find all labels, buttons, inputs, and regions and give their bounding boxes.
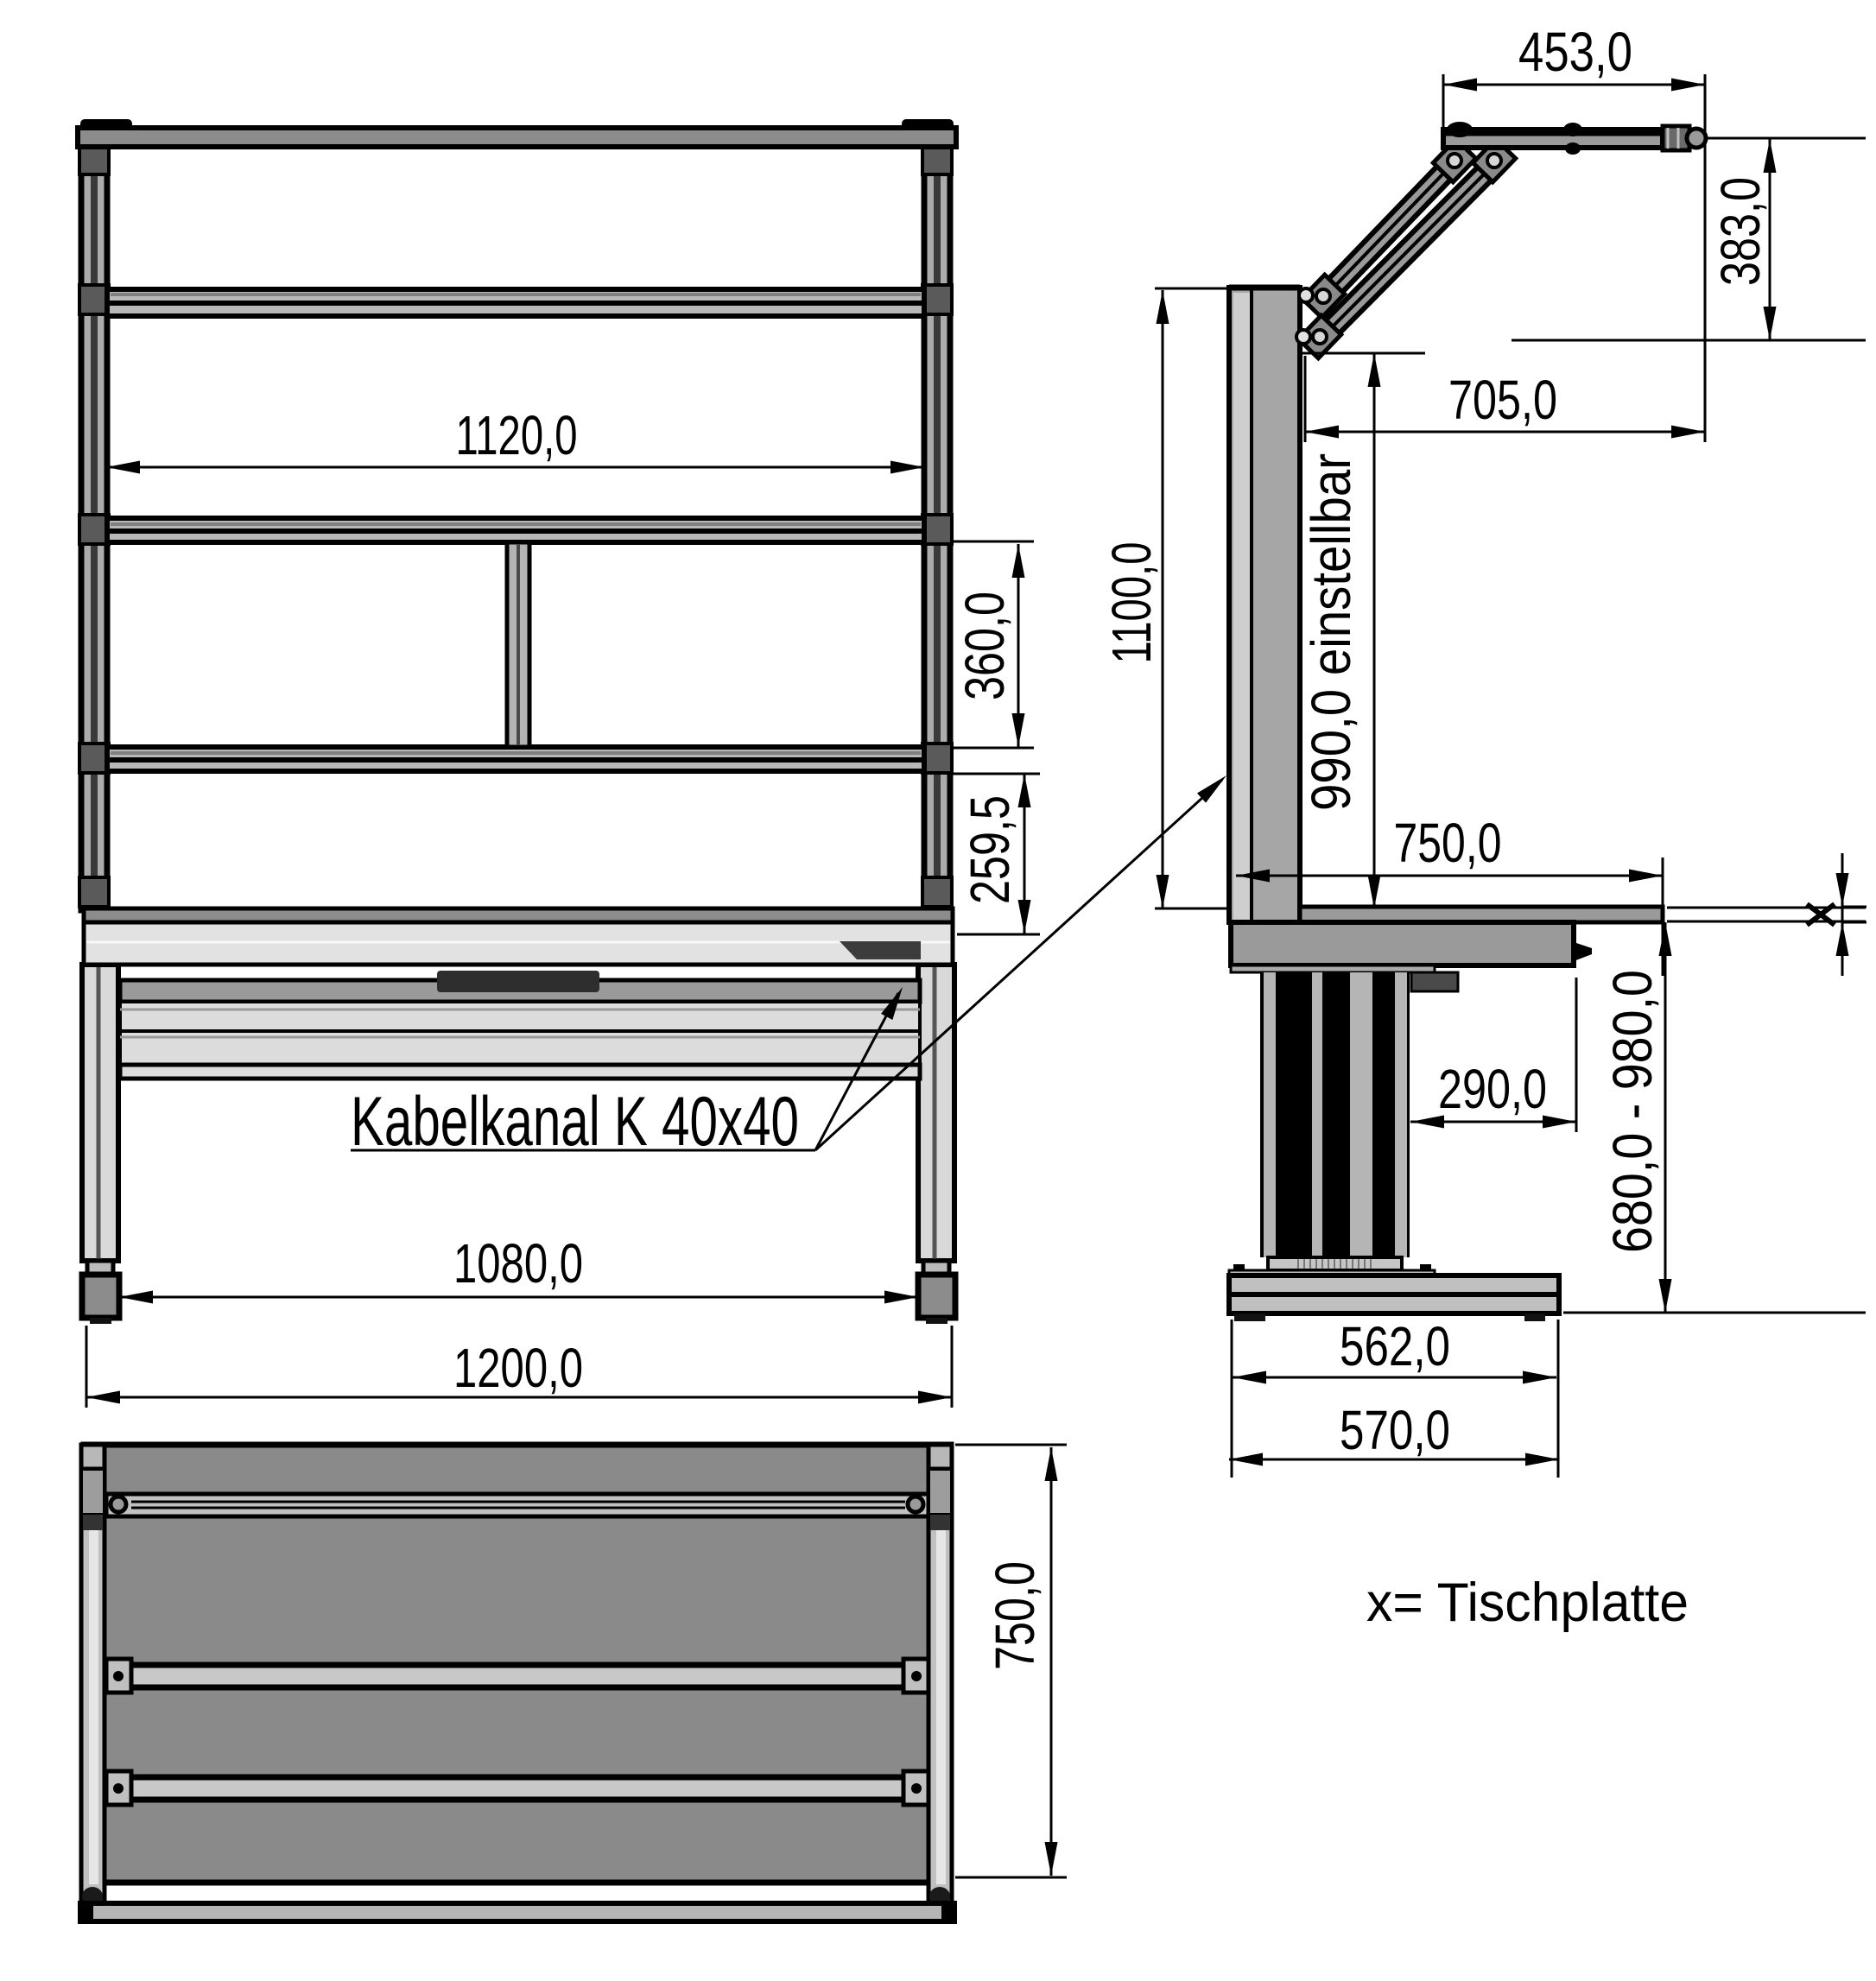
svg-text:990,0 einstellbar: 990,0 einstellbar: [1300, 453, 1362, 811]
svg-text:259,5: 259,5: [959, 795, 1021, 904]
svg-text:290,0: 290,0: [1438, 1058, 1547, 1120]
svg-text:453,0: 453,0: [1518, 21, 1632, 83]
svg-text:562,0: 562,0: [1340, 1315, 1450, 1377]
svg-text:1100,0: 1100,0: [1100, 542, 1163, 664]
svg-text:x= Tischplatte: x= Tischplatte: [1366, 1573, 1689, 1633]
svg-text:570,0: 570,0: [1340, 1399, 1450, 1461]
svg-text:1120,0: 1120,0: [456, 404, 578, 466]
svg-text:750,0: 750,0: [984, 1561, 1046, 1670]
svg-text:383,0: 383,0: [1709, 177, 1771, 286]
svg-text:1200,0: 1200,0: [453, 1337, 583, 1399]
svg-text:360,0: 360,0: [954, 592, 1016, 700]
svg-text:750,0: 750,0: [1394, 812, 1502, 874]
svg-text:680,0 - 980,0: 680,0 - 980,0: [1601, 970, 1664, 1253]
svg-text:705,0: 705,0: [1448, 369, 1557, 431]
svg-text:1080,0: 1080,0: [453, 1232, 583, 1294]
